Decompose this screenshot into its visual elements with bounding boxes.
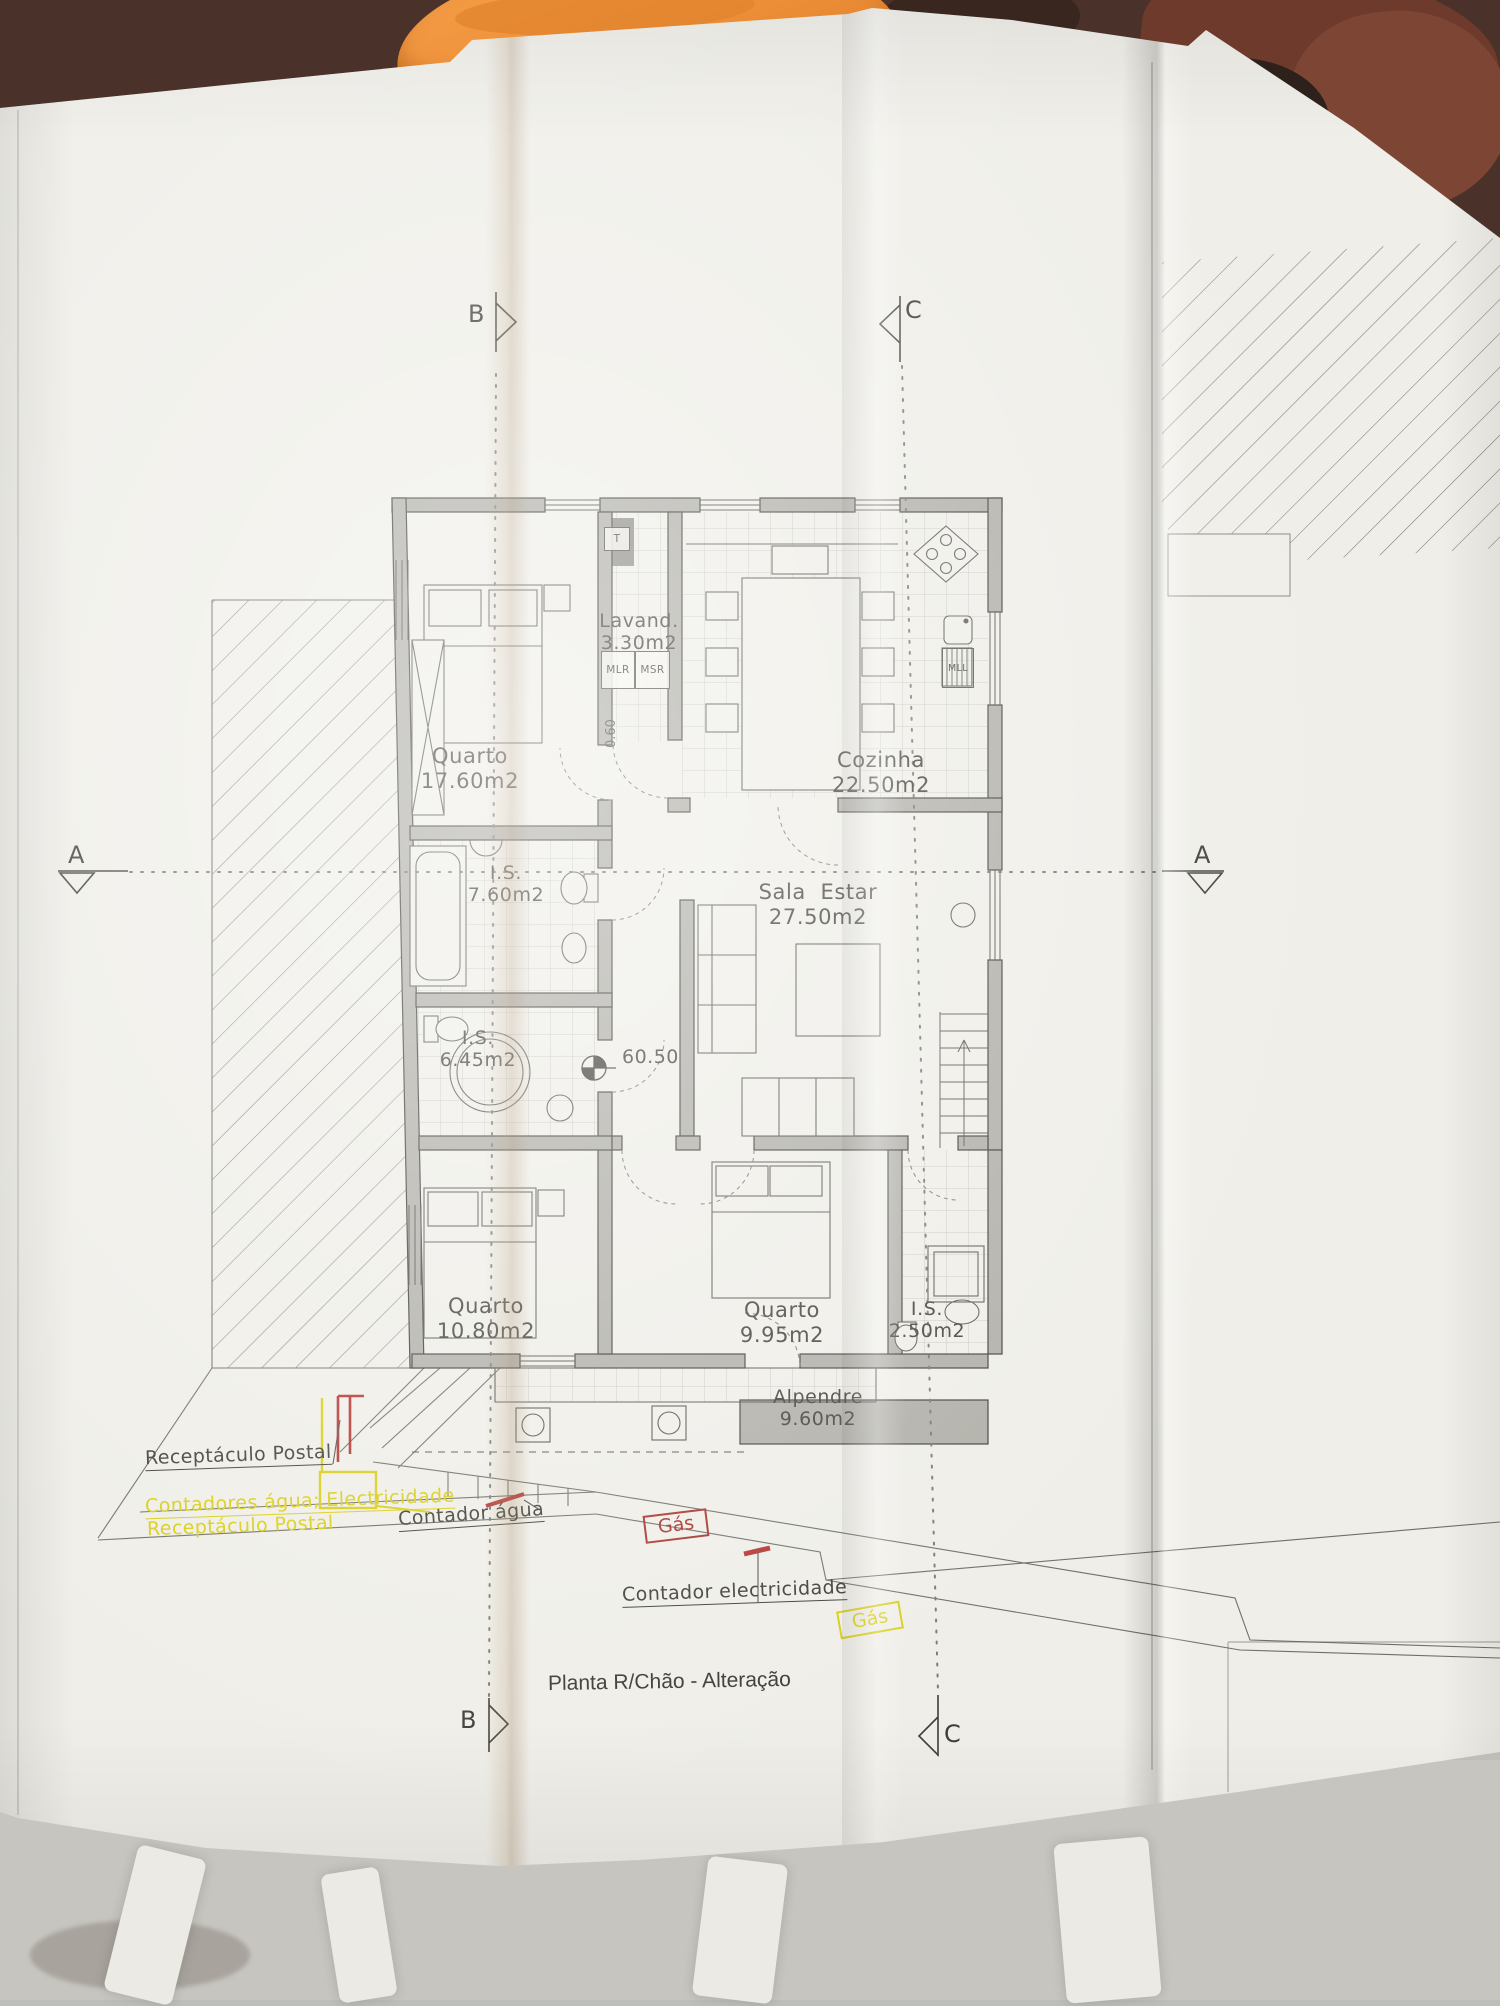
section-marker-a-right: A — [1194, 841, 1210, 869]
room-name: I.S. — [440, 1027, 517, 1049]
room-area: 22.50m2 — [832, 773, 930, 798]
room-name: Alpendre — [773, 1386, 863, 1408]
architectural-drawing-paper: B C A A B C Quarto 17.60m2 Lavand. 3.30m… — [0, 0, 1500, 2000]
room-label-alpendre: Alpendre 9.60m2 — [773, 1386, 863, 1431]
room-area: 9.60m2 — [773, 1408, 863, 1430]
section-marker-a-left: A — [68, 841, 84, 869]
section-marker-c-bottom: C — [944, 1720, 961, 1748]
floor-level-label: 60.50 — [622, 1046, 679, 1068]
room-area: 17.60m2 — [421, 769, 519, 794]
washing-machine-mlr-label: MLR — [601, 651, 635, 689]
chair-leg — [320, 1866, 398, 2003]
room-name: Cozinha — [832, 748, 930, 773]
water-heater-label: T — [604, 527, 630, 551]
room-label-quarto-3: Quarto 9.95m2 — [740, 1298, 824, 1348]
room-label-is-1: I.S. 7.60m2 — [468, 862, 545, 907]
dryer-msr-label: MSR — [635, 651, 670, 689]
step-level-label: 0.60 — [604, 719, 619, 748]
room-area: 10.80m2 — [437, 1319, 535, 1344]
room-label-quarto-1: Quarto 17.60m2 — [421, 744, 519, 794]
room-area: 2.50m2 — [889, 1320, 966, 1342]
room-label-quarto-2: Quarto 10.80m2 — [437, 1294, 535, 1344]
room-label-lavandaria: Lavand. 3.30m2 — [599, 610, 678, 655]
room-area: 9.95m2 — [740, 1323, 824, 1348]
drawing-title: Planta R/Chão - Alteração — [548, 1668, 791, 1696]
photo-of-floor-plan: { "drawing": { "title": "Planta R/Chão -… — [0, 0, 1500, 2000]
section-marker-b-top: B — [468, 300, 484, 328]
section-marker-c-top: C — [905, 296, 922, 324]
room-name: I.S. — [468, 862, 545, 884]
room-area: 27.50m2 — [759, 905, 878, 930]
room-name: Quarto — [740, 1298, 824, 1323]
room-area: 7.60m2 — [468, 884, 545, 906]
staircase — [940, 1012, 988, 1148]
room-name: Quarto — [437, 1294, 535, 1319]
room-label-is-2: I.S. 6.45m2 — [440, 1027, 517, 1072]
room-label-cozinha: Cozinha 22.50m2 — [832, 748, 930, 798]
room-label-sala-estar: Sala Estar 27.50m2 — [759, 880, 878, 930]
room-area: 6.45m2 — [440, 1049, 517, 1071]
room-label-is-3: I.S. 2.50m2 — [889, 1298, 966, 1343]
room-name: Sala Estar — [759, 880, 878, 905]
section-marker-b-bottom: B — [460, 1706, 476, 1734]
room-name: Lavand. — [599, 610, 678, 632]
dishwasher-mll-label: MLL — [942, 648, 974, 688]
room-name: Quarto — [421, 744, 519, 769]
chair-leg — [1053, 1836, 1162, 2004]
chair-leg — [692, 1856, 788, 2005]
room-name: I.S. — [889, 1298, 966, 1320]
floor-plan-linework — [0, 0, 1500, 2000]
